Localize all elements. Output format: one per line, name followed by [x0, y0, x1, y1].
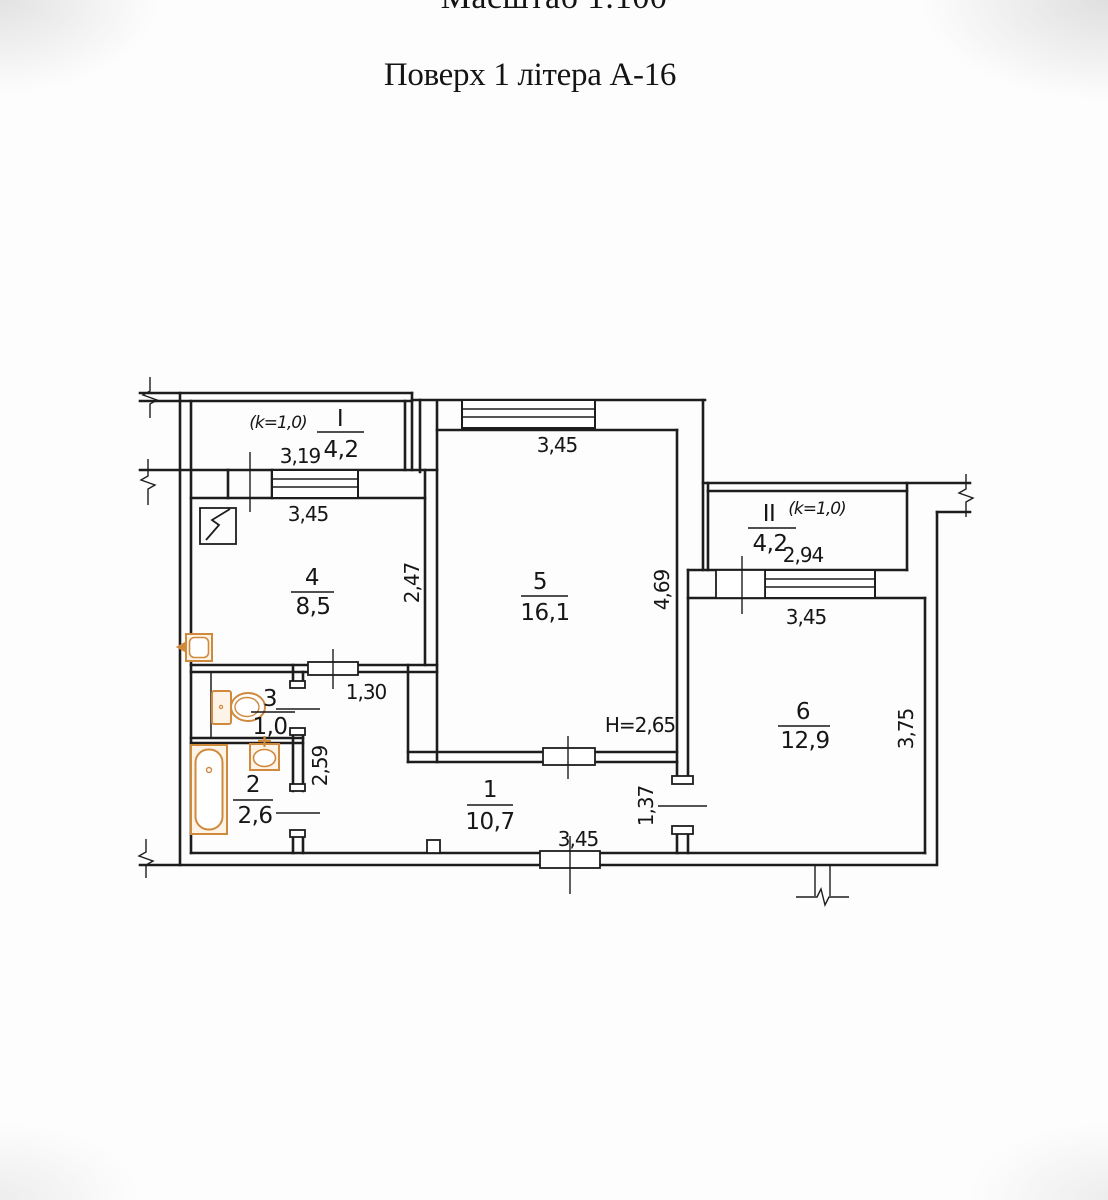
bath-door-jamb: [290, 784, 305, 791]
room6-door-dim: 1,37: [634, 785, 658, 826]
balcony1-coef: (k=1,0): [249, 413, 306, 433]
room5-top-dim: 3,45: [537, 433, 578, 457]
room6-right-dim: 3,75: [894, 709, 918, 750]
entrance-bottom-dim: 3,45: [558, 827, 599, 851]
balcony1-number: I: [337, 406, 343, 432]
balcony1-width-dim: 3,19: [280, 444, 321, 468]
room6-door-jamb: [672, 776, 693, 784]
room6-window: [765, 570, 875, 598]
room5-window: [462, 400, 595, 428]
room4-number: 4: [305, 565, 319, 591]
balcony2-door: [716, 570, 765, 598]
bath-door-jamb: [290, 830, 305, 837]
ceiling-height-note: H=2,65: [605, 713, 675, 737]
room6-top-dim: 3,45: [786, 605, 827, 629]
room5-number: 5: [533, 569, 547, 595]
balcony2-number: II: [763, 501, 776, 527]
bathtub-icon: [191, 745, 227, 834]
washbasin-icon: [250, 736, 279, 770]
walls: [140, 393, 970, 865]
kitchen-window: [272, 470, 358, 498]
kitchen-sink-icon: [177, 634, 212, 661]
kitchen-right-dim: 2,47: [400, 562, 424, 603]
corridor-door-dim: 1,30: [346, 680, 387, 704]
room3-number: 3: [263, 686, 277, 712]
balcony1-area: 4,2: [323, 437, 358, 463]
room6-door-jamb: [672, 826, 693, 834]
vent-shaft-icon: [200, 508, 236, 544]
balcony2-width-dim: 2,94: [783, 543, 824, 567]
wc-door-jamb: [290, 728, 305, 735]
pilaster: [427, 840, 440, 853]
hall-left-dim: 2,59: [308, 745, 332, 786]
kitchen-top-dim: 3,45: [288, 502, 329, 526]
room6-area: 12,9: [780, 728, 829, 754]
room3-area: 1,0: [252, 714, 287, 740]
room2-number: 2: [246, 772, 260, 798]
room6-number: 6: [796, 699, 810, 725]
room5-area: 16,1: [520, 600, 569, 626]
wc-door-jamb: [290, 681, 305, 688]
room1-number: 1: [483, 777, 497, 803]
room2-area: 2,6: [237, 803, 272, 829]
room4-area: 8,5: [295, 594, 330, 620]
balcony2-coef: (k=1,0): [788, 499, 845, 519]
room5-right-dim: 4,69: [650, 569, 674, 610]
room5-door: [543, 748, 595, 765]
floor-plan: (k=1,0) I 4,2 3,19 II (k=1,0) 4,2 2,94 3…: [0, 0, 1108, 1200]
scanned-floor-plan-page: Масштаб 1:100 Поверх 1 літера А-16: [0, 0, 1108, 1200]
room1-area: 10,7: [465, 809, 514, 835]
